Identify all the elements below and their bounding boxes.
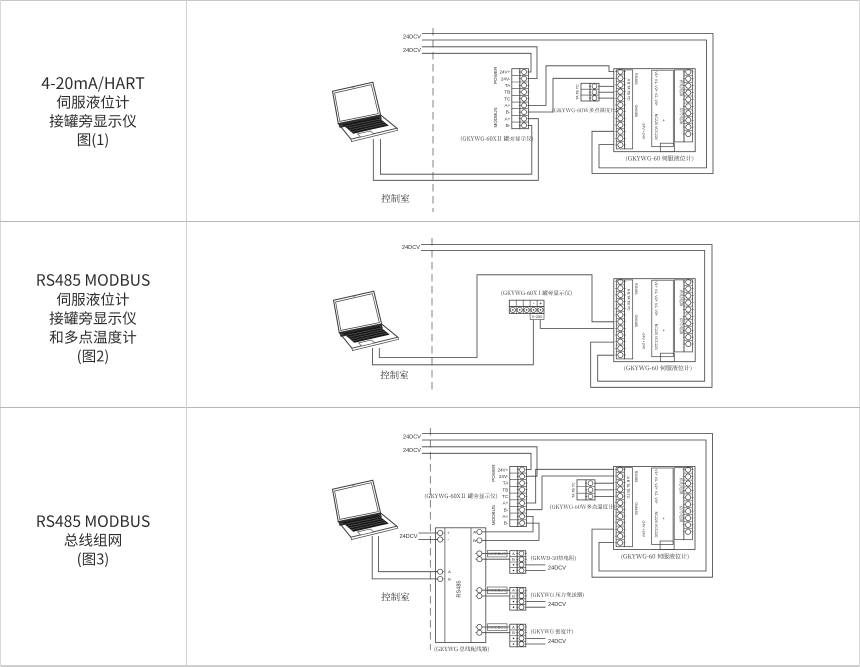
svg-text:V1+ V1- V2+ V2- V3+: V1+ V1- V2+ V2- V3+ (654, 469, 658, 504)
svg-text:GM485: GM485 (634, 314, 638, 326)
svg-text:B-: B- (504, 521, 509, 526)
svg-text:B-: B- (506, 123, 511, 128)
svg-text:-24V +24V: -24V +24V (642, 122, 646, 140)
svg-text:A: A (512, 551, 515, 556)
svg-text:TC: TC (502, 494, 509, 499)
svg-text:-24V +24V: -24V +24V (641, 520, 645, 538)
svg-text:A+: A+ (505, 116, 511, 121)
svg-text:RS485: RS485 (634, 283, 638, 295)
svg-text:RS485: RS485 (456, 580, 462, 597)
svg-text:MODBUS: MODBUS (488, 551, 506, 556)
svg-text:0~250: 0~250 (532, 315, 543, 319)
svg-text:GM485: GM485 (634, 104, 638, 116)
svg-text:24DCV: 24DCV (403, 48, 421, 54)
svg-text:B: B (473, 538, 476, 543)
svg-text:24DCV: 24DCV (403, 448, 421, 454)
svg-text:24DCV: 24DCV (399, 534, 417, 540)
svg-text:+: + (662, 516, 665, 521)
svg-text:24V-: 24V- (499, 474, 509, 479)
svg-text:MODBUS: MODBUS (491, 505, 496, 525)
svg-text:NC220 VCC220: NC220 VCC220 (654, 512, 658, 538)
svg-text:24DCV: 24DCV (548, 565, 566, 571)
svg-text:A B TA TB TC: A B TA TB TC (626, 289, 630, 311)
svg-text:NC220 VCC220: NC220 VCC220 (654, 114, 658, 140)
svg-text:TA: TA (505, 83, 511, 88)
svg-text:NC220 VCC220: NC220 VCC220 (654, 324, 658, 350)
svg-text:A: A (512, 624, 515, 629)
svg-text:MODBUS: MODBUS (488, 588, 506, 593)
svg-text:A+: A+ (503, 501, 509, 506)
svg-text:MODBUS: MODBUS (488, 625, 506, 630)
svg-text:TA: TA (503, 481, 509, 486)
svg-text:+: + (539, 301, 542, 307)
svg-text:24DCV: 24DCV (403, 435, 421, 441)
svg-text:B-: B- (504, 507, 509, 512)
svg-text:RS485: RS485 (634, 471, 638, 483)
svg-text:A B TA TB TC: A B TA TB TC (626, 79, 630, 101)
svg-text:+: + (662, 328, 665, 333)
svg-text:+: + (662, 118, 665, 123)
svg-text:POWER: POWER (493, 66, 498, 84)
svg-text:24V-: 24V- (501, 76, 511, 81)
svg-text:POWER: POWER (491, 464, 496, 482)
svg-text:B: B (512, 557, 515, 562)
svg-text:V1+ V1- V2+ V2- V3+: V1+ V1- V2+ V2- V3+ (654, 71, 658, 106)
svg-text:TA TB TC: TA TB TC (572, 482, 576, 498)
svg-text:24DCV: 24DCV (403, 35, 421, 41)
svg-text:A+: A+ (503, 514, 509, 519)
svg-text:TA TB TC: TA TB TC (576, 84, 580, 100)
svg-text:A: A (473, 529, 476, 534)
svg-text:A: A (448, 569, 451, 574)
svg-text:-24V +24V: -24V +24V (642, 332, 646, 350)
svg-text:24DCV: 24DCV (548, 639, 566, 645)
svg-text:A: A (512, 588, 515, 593)
svg-text:24V+: 24V+ (497, 467, 508, 472)
svg-text:24V+: 24V+ (499, 70, 510, 75)
svg-text:24DCV: 24DCV (548, 602, 566, 608)
svg-text:A B TA TB TC: A B TA TB TC (626, 477, 630, 499)
svg-text:MODBUS: MODBUS (493, 107, 498, 127)
svg-text:24DCV: 24DCV (402, 245, 420, 251)
svg-text:GM485: GM485 (634, 502, 638, 514)
svg-text:RS485: RS485 (634, 73, 638, 85)
svg-text:B: B (448, 576, 451, 581)
svg-text:B: B (512, 593, 515, 598)
svg-text:B: B (512, 630, 515, 635)
svg-text:TC: TC (504, 96, 511, 101)
svg-text:A+: A+ (505, 103, 511, 108)
svg-text:TB: TB (504, 90, 510, 95)
svg-text:V1+ V1- V2+ V2- V3+: V1+ V1- V2+ V2- V3+ (654, 281, 658, 316)
svg-text:B-: B- (506, 110, 511, 115)
svg-text:TB: TB (502, 487, 508, 492)
